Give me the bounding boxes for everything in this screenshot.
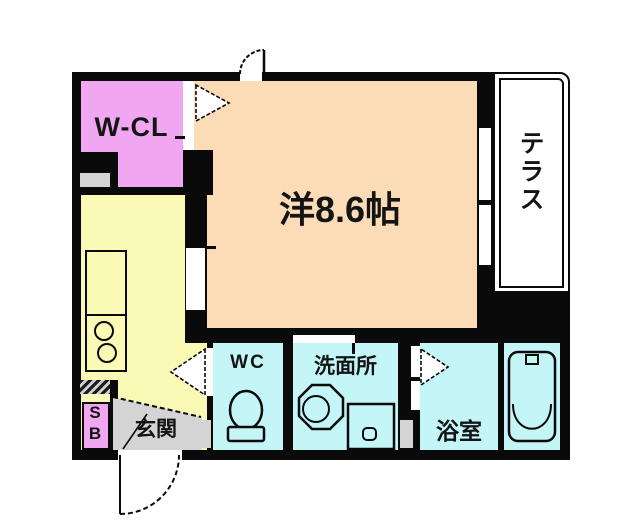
terrace-window-2 — [479, 205, 491, 265]
label-shoebox-s: S — [82, 403, 108, 423]
label-walk-in-closet: W-CL — [80, 112, 183, 143]
hatched-block — [80, 380, 110, 394]
kitchen-door-opening — [186, 248, 205, 310]
wall-wcl-right-chunk — [183, 150, 213, 195]
label-terrace: テラス — [512, 130, 548, 214]
label-main-room: 洋8.6帖 — [235, 181, 445, 233]
terrace-window-1 — [479, 128, 491, 200]
kitchen-counter-icon — [85, 250, 127, 316]
bath-door-opening-2 — [411, 381, 420, 410]
label-washroom: 洗面所 — [293, 350, 398, 380]
washroom-sliding-door — [293, 335, 355, 343]
entrance-door-swing-arc-icon — [120, 455, 179, 514]
kitchen-door-tick — [205, 246, 216, 249]
room-bathtub-area — [504, 343, 560, 450]
wall-bath-tub — [498, 343, 504, 450]
wall-under-terrace — [493, 293, 570, 343]
wall-wc-washroom — [283, 343, 293, 450]
floorplan: W-CL 洋8.6帖 テラス WC 洗面所 浴室 玄関 S B — [0, 0, 640, 528]
label-entrance: 玄関 — [116, 413, 196, 443]
door-swing-arc-icon — [240, 50, 264, 74]
stove-burners-icon — [85, 314, 127, 372]
label-bathroom: 浴室 — [420, 412, 498, 446]
entrance-door-opening — [118, 450, 182, 460]
wall-strip-wc — [202, 420, 211, 448]
wall-wcl-notch — [110, 152, 118, 195]
wall-right-lower — [560, 343, 570, 460]
duct-block — [80, 173, 110, 187]
label-shoebox-b: B — [82, 424, 108, 444]
wc-door-opening — [205, 348, 213, 396]
top-door-opening — [240, 72, 262, 81]
label-wc: WC — [213, 352, 283, 374]
wall-strip-bath — [400, 420, 413, 448]
wall-top — [72, 72, 493, 81]
bath-door-opening-1 — [411, 346, 420, 377]
wcl-door-leaf — [185, 82, 194, 150]
